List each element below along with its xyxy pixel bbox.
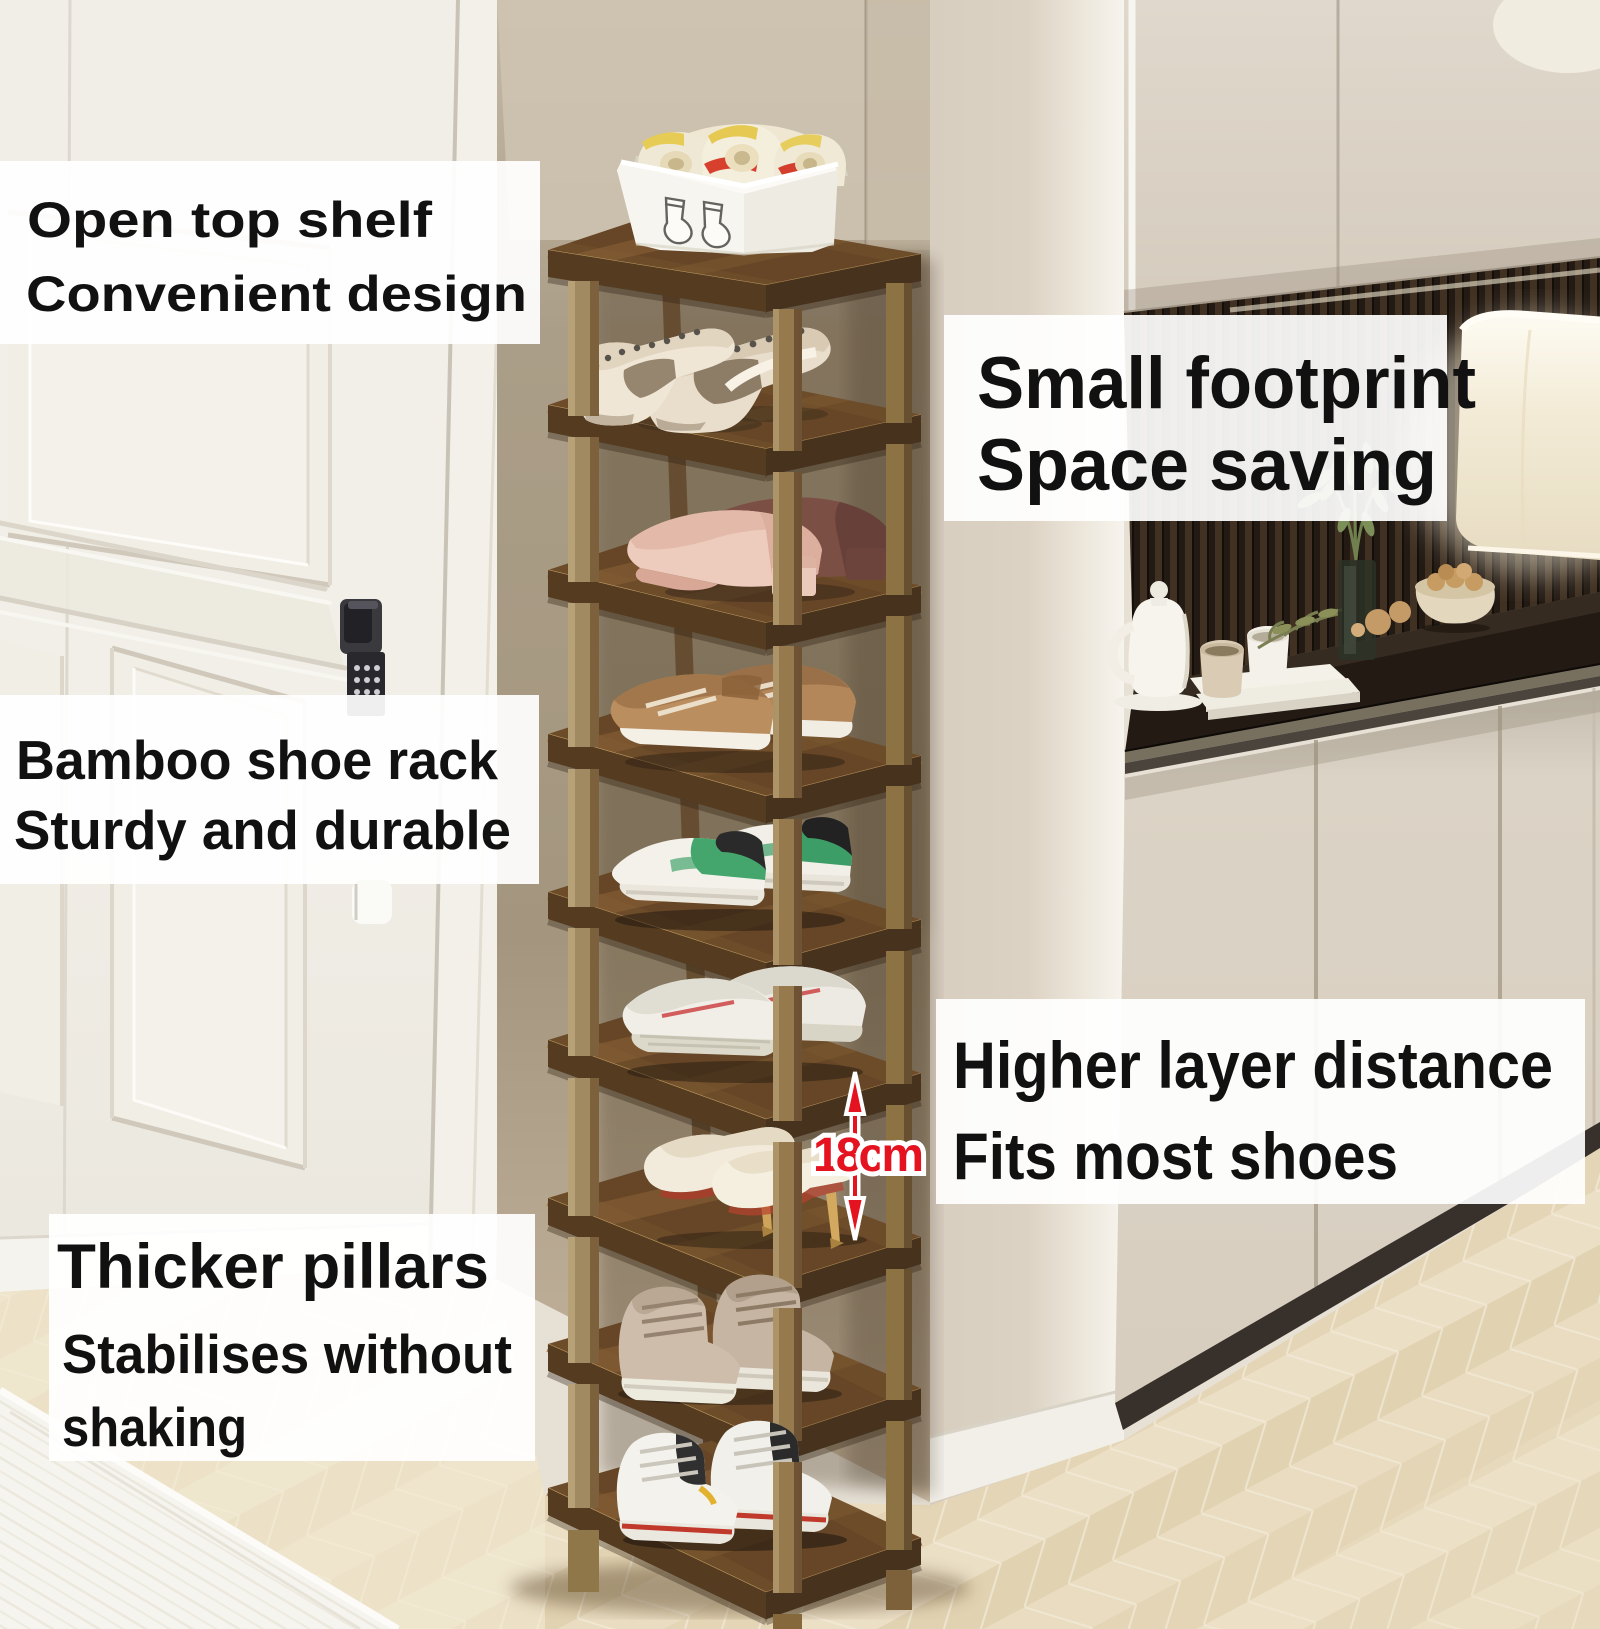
svg-text:Convenient design: Convenient design	[26, 266, 527, 322]
svg-text:Small footprint: Small footprint	[977, 343, 1476, 424]
svg-text:Thicker pillars: Thicker pillars	[57, 1232, 489, 1302]
svg-text:shaking: shaking	[62, 1396, 247, 1458]
svg-text:Fits most shoes: Fits most shoes	[953, 1119, 1398, 1193]
svg-text:18cm: 18cm	[813, 1129, 924, 1182]
svg-text:Higher layer distance: Higher layer distance	[953, 1028, 1553, 1102]
svg-text:Sturdy and durable: Sturdy and durable	[14, 799, 511, 861]
svg-text:Stabilises without: Stabilises without	[62, 1323, 512, 1385]
svg-text:Open top shelf: Open top shelf	[27, 192, 432, 248]
svg-text:Space saving: Space saving	[977, 425, 1437, 506]
svg-text:Bamboo shoe rack: Bamboo shoe rack	[16, 729, 498, 791]
